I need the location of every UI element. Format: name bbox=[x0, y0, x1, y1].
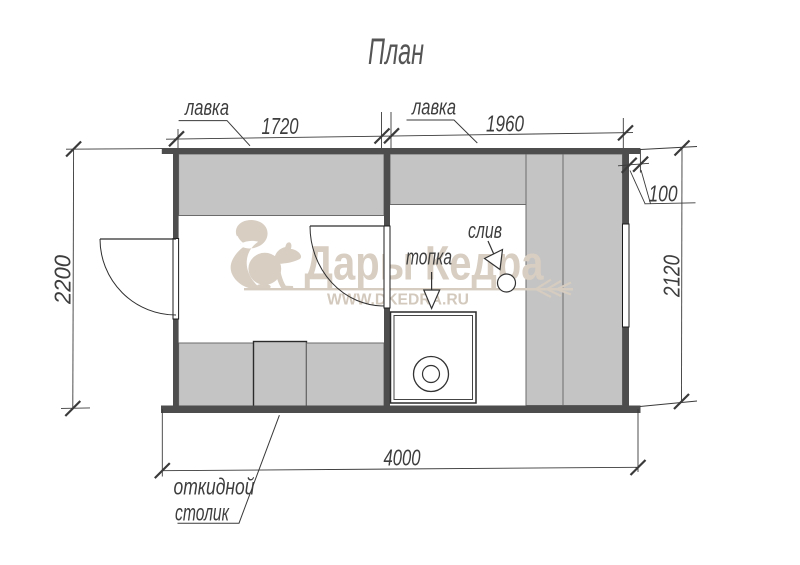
svg-text:1720: 1720 bbox=[262, 113, 299, 139]
svg-text:План: План bbox=[368, 31, 424, 72]
svg-text:4000: 4000 bbox=[384, 445, 421, 471]
svg-text:2120: 2120 bbox=[659, 255, 685, 298]
svg-text:топка: топка bbox=[406, 245, 452, 270]
svg-text:WWW.DKEDRA.RU: WWW.DKEDRA.RU bbox=[327, 292, 469, 309]
svg-text:100: 100 bbox=[649, 181, 678, 207]
svg-text:лавка: лавка bbox=[184, 95, 229, 120]
svg-text:столик: столик bbox=[175, 500, 230, 526]
svg-text:слив: слив bbox=[468, 218, 502, 243]
svg-text:2200: 2200 bbox=[50, 255, 76, 305]
svg-text:1960: 1960 bbox=[486, 111, 524, 137]
svg-text:откидной: откидной bbox=[174, 474, 255, 500]
svg-text:лавка: лавка bbox=[411, 95, 456, 120]
